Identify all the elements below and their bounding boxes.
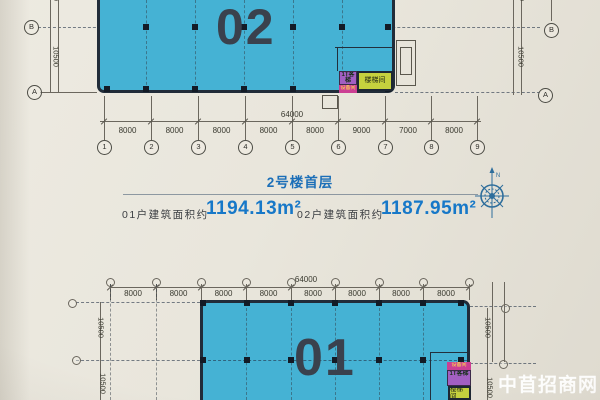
column-marker	[241, 86, 247, 92]
column-marker	[104, 86, 110, 92]
column-marker	[290, 86, 296, 92]
watermark-text: 中苜招商网	[498, 370, 598, 397]
segment-dim: 9000	[345, 126, 379, 135]
segment-dim: 8000	[252, 289, 286, 298]
dim-extension	[201, 284, 202, 300]
grid-line-A-right	[395, 92, 540, 93]
column-marker	[200, 300, 206, 306]
side-dim-clipped: 10500	[52, 0, 61, 4]
stairwell: 楼梯间	[448, 386, 471, 400]
stairwell: 楼梯间	[357, 71, 393, 91]
interior-wall	[430, 352, 431, 400]
grid-bubble-number: 3	[191, 140, 206, 155]
column-marker	[458, 300, 464, 306]
elevator-room: 1T客梯	[339, 71, 357, 85]
column-marker	[376, 357, 382, 363]
segment-dim: 8000	[158, 126, 192, 135]
side-dim-clipped: 10500	[518, 0, 527, 4]
segment-dim: 8000	[207, 289, 241, 298]
side-dim: 10500	[99, 371, 108, 397]
grid-bubble-B-right: B	[544, 23, 559, 38]
column-marker	[420, 300, 426, 306]
grid-bubble-number: 5	[285, 140, 300, 155]
segment-dim: 8000	[384, 289, 418, 298]
column-marker	[290, 24, 296, 30]
grid-bubble-number: 2	[144, 140, 159, 155]
interior-wall	[337, 47, 338, 71]
dim-extension	[291, 284, 292, 300]
column-marker	[288, 300, 294, 306]
equipment-room: 设备间	[339, 85, 357, 93]
side-dim-clipped: 10500	[486, 375, 495, 400]
dim-extension	[551, 0, 552, 21]
grid-bubble-B-left: B	[24, 20, 39, 35]
dim-extension	[469, 284, 470, 300]
building-grid-line	[379, 303, 380, 400]
blueprint-photo: 02 1T客梯 设备间 楼梯间 B A 10500 10500 B A 1050…	[0, 0, 600, 400]
segment-dim: 8000	[296, 289, 330, 298]
side-dim: 10500	[517, 44, 526, 70]
divider-line	[123, 194, 478, 195]
exterior-stair-inner	[400, 47, 412, 75]
compass-icon: N	[472, 165, 512, 221]
column-marker	[376, 300, 382, 306]
building-grid-line	[291, 303, 292, 400]
side-dim: 10500	[52, 44, 61, 70]
dim-extension	[423, 284, 424, 300]
grid-dot	[72, 356, 81, 365]
side-dim: 10500	[484, 315, 493, 341]
segment-dim: 8000	[340, 289, 374, 298]
segment-dim: 8000	[429, 289, 463, 298]
grid-bubble-number: 6	[331, 140, 346, 155]
area-value-02: 1187.95m²	[381, 198, 476, 220]
unit-label-01: 01	[294, 332, 356, 384]
plan-title: 2号楼首层	[220, 171, 380, 191]
segment-dim: 8000	[437, 126, 471, 135]
grid-line	[76, 360, 200, 361]
grid-bubble-A-left: A	[27, 85, 42, 100]
area-value-01: 1194.13m²	[206, 198, 301, 220]
interior-wall	[335, 47, 393, 48]
grid-bubble-number: 7	[378, 140, 393, 155]
segment-dim: 8000	[205, 126, 239, 135]
column-marker	[192, 86, 198, 92]
floor-plan-unit-02: 02 1T客梯 设备间 楼梯间 B A 10500 10500 B A 1050…	[0, 0, 600, 165]
building-grid-line	[146, 0, 147, 90]
grid-line	[156, 284, 157, 400]
building-grid-line	[423, 303, 424, 400]
segment-dim: 7000	[391, 126, 425, 135]
grid-dot	[68, 299, 77, 308]
dim-extension	[504, 282, 505, 362]
exterior-landing	[322, 95, 338, 109]
dim-extension	[513, 0, 514, 95]
building-grid-line	[293, 0, 294, 90]
grid-dot	[501, 304, 510, 313]
column-marker	[339, 24, 345, 30]
column-marker	[244, 357, 250, 363]
equipment-room: 设备间	[447, 362, 471, 370]
grid-line	[110, 284, 111, 400]
column-marker	[420, 357, 426, 363]
unit-label-02: 02	[216, 2, 276, 52]
grid-line-A-left	[40, 92, 97, 93]
segment-dim: 8000	[111, 126, 145, 135]
grid-line	[76, 302, 200, 303]
segment-dim: 8000	[298, 126, 332, 135]
grid-bubble-number: 8	[424, 140, 439, 155]
segment-dim: 8000	[116, 289, 150, 298]
column-marker	[143, 24, 149, 30]
column-marker	[244, 300, 250, 306]
grid-bubble-number: 9	[470, 140, 485, 155]
grid-bubble-number: 1	[97, 140, 112, 155]
segment-dim: 8000	[162, 289, 196, 298]
segment-dim: 8000	[252, 126, 286, 135]
dim-extension	[246, 284, 247, 300]
grid-bubble-A-right: A	[538, 88, 553, 103]
compass-north-label: N	[496, 173, 500, 179]
building-grid-line	[195, 0, 196, 90]
area-label-01: 01户建筑面积约	[122, 207, 209, 222]
column-marker	[143, 86, 149, 92]
elevator-room: 1T客梯	[447, 370, 471, 386]
dim-extension	[379, 284, 380, 300]
dim-extension	[335, 284, 336, 300]
column-marker	[192, 24, 198, 30]
building-grid-line	[246, 303, 247, 400]
area-label-02: 02户建筑面积约	[297, 207, 384, 222]
column-marker	[332, 300, 338, 306]
interior-wall	[430, 352, 467, 353]
column-marker	[385, 24, 391, 30]
grid-bubble-number: 4	[238, 140, 253, 155]
side-dim: 10500	[97, 315, 106, 341]
column-marker	[200, 357, 206, 363]
